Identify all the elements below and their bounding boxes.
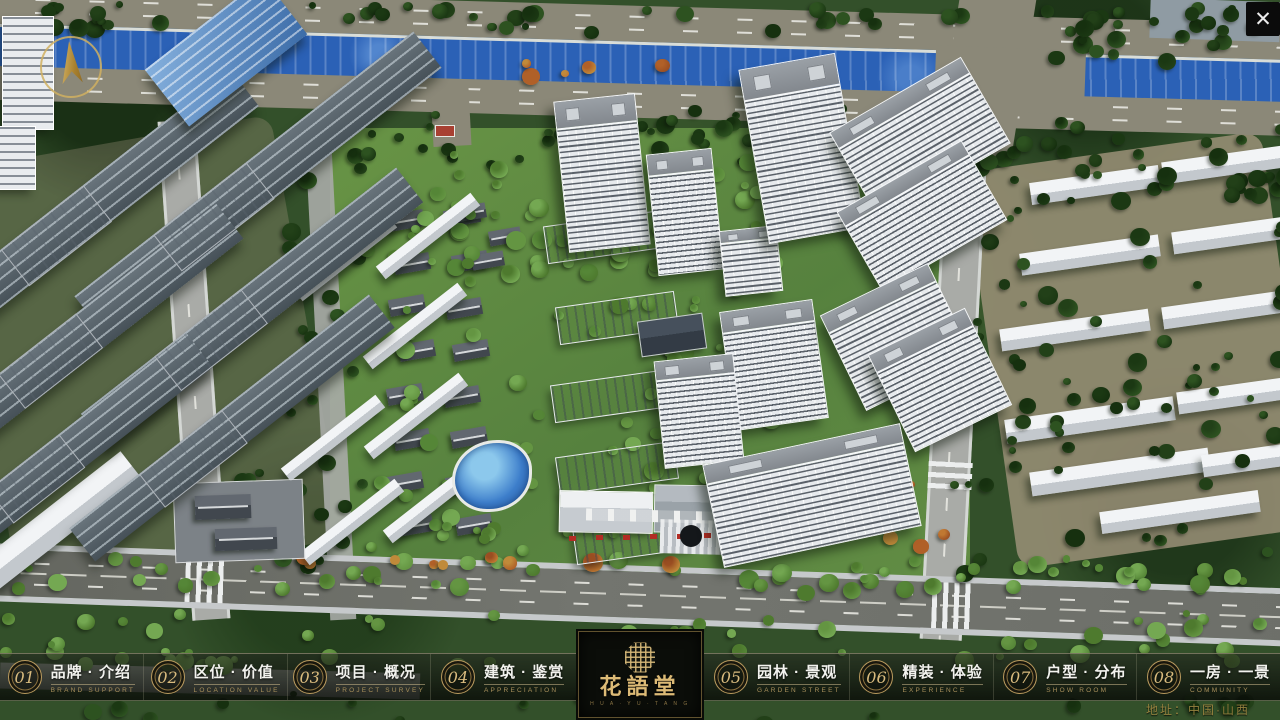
- tree: [319, 574, 335, 589]
- seal-emblem-icon: [625, 643, 655, 673]
- tree: [1187, 374, 1202, 388]
- tree: [314, 508, 329, 522]
- tree: [454, 170, 465, 180]
- nav-item-label-zh: 区位 · 价值: [194, 661, 274, 682]
- tree: [950, 481, 959, 490]
- tree: [1130, 228, 1149, 246]
- tree: [309, 2, 317, 9]
- nav-item-number-badge: 06: [859, 660, 893, 694]
- tree: [487, 23, 496, 32]
- tree: [1217, 25, 1228, 35]
- tree: [254, 565, 262, 572]
- tree: [1275, 124, 1280, 136]
- entry-gate: [436, 126, 454, 136]
- tree: [763, 615, 774, 625]
- tree: [1065, 529, 1084, 547]
- tree: [12, 582, 25, 594]
- tree: [956, 573, 966, 582]
- nav-item-number-badge: 01: [8, 660, 42, 694]
- tree: [1095, 564, 1104, 572]
- nav-item-text: 一房 · 一景COMMUNITY: [1190, 661, 1270, 694]
- tree: [772, 564, 792, 582]
- tree: [1084, 627, 1103, 644]
- tree: [155, 563, 168, 575]
- nav-item-05[interactable]: 05园林 · 景观GARDEN STREET: [706, 654, 850, 700]
- tree: [1175, 30, 1189, 43]
- nav-item-number-badge: 08: [1147, 660, 1181, 694]
- tree: [1201, 16, 1216, 30]
- tree: [506, 231, 526, 249]
- nav-item-label-zh: 品牌 · 介绍: [51, 661, 131, 682]
- tree: [561, 70, 568, 77]
- nav-item-label-en: GARDEN STREET: [757, 687, 841, 694]
- tree: [146, 623, 163, 638]
- tree: [466, 328, 481, 342]
- tree: [1235, 454, 1250, 468]
- nav-item-label-zh: 精装 · 体验: [902, 661, 982, 682]
- tree: [1142, 533, 1152, 542]
- nav-item-label-en: COMMUNITY: [1190, 687, 1250, 694]
- nav-item-label-zh: 园林 · 景观: [757, 661, 837, 682]
- tree: [647, 128, 655, 135]
- tree: [450, 578, 470, 596]
- residential-slab: [999, 309, 1151, 352]
- nav-item-text: 品牌 · 介绍BRAND SUPPORT: [51, 661, 135, 694]
- tree: [431, 111, 440, 119]
- residential-slab: [1161, 287, 1280, 330]
- tree: [843, 582, 861, 599]
- tree: [851, 562, 863, 573]
- flower-bed: [623, 535, 630, 540]
- tree: [469, 13, 478, 21]
- tree: [203, 571, 219, 586]
- tree: [1193, 364, 1200, 370]
- tree: [1124, 567, 1135, 577]
- project-logo-panel[interactable]: 花語堂 H U A · Y U · T A N G: [578, 631, 702, 718]
- tree: [430, 187, 446, 201]
- tree: [819, 574, 839, 592]
- tree: [302, 630, 314, 641]
- tree: [765, 24, 781, 38]
- courtyard-roof: [215, 527, 278, 551]
- tree: [1262, 547, 1274, 558]
- tree: [1133, 149, 1145, 160]
- tree: [818, 621, 836, 638]
- nav-item-number-badge: 04: [441, 660, 475, 694]
- tree: [741, 182, 749, 190]
- tree: [896, 581, 915, 598]
- flower-bed: [650, 534, 657, 539]
- tree: [1093, 171, 1102, 179]
- tree: [108, 552, 123, 566]
- tree: [1201, 137, 1213, 148]
- tree: [322, 290, 339, 306]
- tree: [338, 500, 351, 512]
- tree: [2, 613, 15, 625]
- tree: [691, 133, 704, 145]
- nav-item-06[interactable]: 06精装 · 体验EXPERIENCE: [850, 654, 994, 700]
- tree: [1183, 610, 1191, 617]
- nav-item-number-badge: 02: [151, 660, 185, 694]
- nav-item-label-zh: 户型 · 分布: [1046, 661, 1126, 682]
- tree: [395, 716, 405, 720]
- tree: [1015, 415, 1031, 429]
- tree: [1082, 560, 1090, 567]
- tree: [1058, 299, 1078, 317]
- tree: [1108, 49, 1119, 60]
- tree: [368, 130, 376, 138]
- tree: [519, 700, 529, 709]
- tree: [116, 1, 123, 8]
- tree: [715, 120, 733, 137]
- nav-item-07[interactable]: 07户型 · 分布SHOW ROOM: [994, 654, 1138, 700]
- tree: [1089, 154, 1102, 166]
- tree: [1067, 197, 1074, 204]
- nav-item-number-badge: 07: [1003, 660, 1037, 694]
- tree: [1157, 335, 1172, 349]
- nav-item-02[interactable]: 02区位 · 价值LOCATION VALUE: [144, 654, 288, 700]
- tree: [580, 264, 598, 281]
- tree: [143, 712, 158, 720]
- tree: [1062, 442, 1075, 454]
- tree: [130, 556, 142, 567]
- tree: [499, 21, 514, 35]
- tree: [1038, 286, 1058, 304]
- tree: [1092, 387, 1110, 404]
- tree: [275, 582, 290, 596]
- tree: [1006, 580, 1021, 594]
- tree: [860, 575, 869, 583]
- tree: [1014, 207, 1021, 214]
- tree: [48, 574, 66, 591]
- tree: [488, 610, 500, 621]
- tree: [1107, 31, 1126, 48]
- nav-item-number-badge: 03: [293, 660, 327, 694]
- tree: [460, 556, 475, 570]
- residential-slab: [300, 479, 404, 565]
- tree: [1067, 393, 1081, 406]
- tree: [394, 133, 404, 142]
- nav-item-divider: [1046, 684, 1126, 685]
- nav-item-text: 园林 · 景观GARDEN STREET: [757, 661, 841, 694]
- tree: [509, 375, 526, 391]
- tree: [1224, 188, 1240, 202]
- tree: [1149, 17, 1159, 26]
- tree: [965, 481, 972, 488]
- nav-item-label-en: SHOW ROOM: [1046, 687, 1108, 694]
- tree: [1048, 567, 1059, 577]
- tree: [111, 701, 128, 717]
- nav-item-label-zh: 项目 · 概况: [336, 661, 416, 682]
- tree: [403, 2, 413, 11]
- tree: [1112, 133, 1124, 144]
- tree: [526, 564, 539, 576]
- tree: [437, 530, 449, 541]
- nav-item-divider: [757, 684, 841, 685]
- rooftop-deck: [155, 291, 266, 390]
- tree: [432, 4, 447, 18]
- nav-item-label-zh: 一房 · 一景: [1190, 661, 1270, 682]
- tree: [727, 629, 737, 638]
- tree: [642, 6, 652, 15]
- tree: [1048, 51, 1064, 66]
- nav-item-divider: [1190, 684, 1270, 685]
- tree: [522, 59, 532, 68]
- tree: [1113, 7, 1124, 17]
- tree: [544, 129, 552, 137]
- tree: [501, 265, 520, 283]
- tree: [1209, 148, 1228, 166]
- nav-item-divider: [336, 684, 425, 685]
- tree: [426, 123, 434, 131]
- tree: [307, 395, 318, 405]
- nav-item-label-zh: 建筑 · 鉴赏: [484, 661, 564, 682]
- tree: [1054, 466, 1063, 474]
- tree: [836, 12, 850, 25]
- tree: [1134, 617, 1143, 625]
- tree: [716, 344, 724, 351]
- tree: [1128, 353, 1148, 371]
- nav-item-label-en: LOCATION VALUE: [194, 687, 280, 694]
- tree: [473, 527, 481, 534]
- tree: [1007, 436, 1017, 445]
- tree: [584, 26, 599, 39]
- tree: [533, 410, 544, 420]
- tree: [522, 23, 530, 30]
- tree: [621, 417, 633, 428]
- tree: [371, 618, 385, 631]
- tree: [1075, 20, 1094, 37]
- tree: [1041, 5, 1055, 18]
- tree: [479, 534, 490, 544]
- tree: [438, 560, 448, 569]
- tree: [1020, 301, 1027, 308]
- tree: [428, 258, 436, 265]
- tree: [542, 135, 555, 147]
- tree: [442, 522, 452, 531]
- tree: [152, 15, 169, 30]
- tree: [1199, 478, 1212, 490]
- nav-item-divider: [484, 684, 564, 685]
- tree: [968, 563, 980, 574]
- nav-item-text: 区位 · 价值LOCATION VALUE: [194, 661, 280, 694]
- tree: [133, 574, 146, 586]
- nav-item-label-en: EXPERIENCE: [902, 687, 966, 694]
- tree: [491, 211, 500, 219]
- tree: [1253, 618, 1267, 631]
- nav-item-divider: [51, 684, 135, 685]
- tree: [77, 614, 94, 630]
- tree: [465, 276, 476, 287]
- tree: [1111, 192, 1130, 210]
- nav-item-text: 精装 · 体验EXPERIENCE: [902, 661, 982, 694]
- tree: [347, 366, 359, 377]
- project-address: 地址：中国·山西: [1146, 701, 1250, 718]
- tree: [1149, 446, 1160, 456]
- tree: [1201, 420, 1221, 438]
- tree: [1190, 575, 1210, 593]
- tree: [462, 258, 474, 269]
- nav-item-08[interactable]: 08一房 · 一景COMMUNITY: [1137, 654, 1280, 700]
- tree: [1185, 7, 1199, 20]
- tree: [374, 577, 382, 585]
- tree: [174, 609, 186, 620]
- tree: [1063, 555, 1071, 562]
- tree: [1154, 535, 1166, 546]
- rooftop-deck: [0, 315, 102, 408]
- tree: [666, 115, 678, 126]
- project-name-latin: H U A · Y U · T A N G: [590, 701, 690, 707]
- tree: [90, 6, 106, 21]
- nav-group-left: 01品牌 · 介绍BRAND SUPPORT02区位 · 价值LOCATION …: [0, 654, 574, 700]
- tree: [420, 434, 438, 451]
- tree: [1244, 188, 1257, 200]
- tree: [1007, 215, 1014, 222]
- tree: [515, 155, 523, 163]
- midrise-slab: [551, 370, 673, 422]
- tree: [938, 529, 950, 540]
- tree: [1270, 351, 1280, 368]
- tree: [693, 618, 706, 630]
- tree: [517, 545, 530, 557]
- nav-item-01[interactable]: 01品牌 · 介绍BRAND SUPPORT: [0, 654, 144, 700]
- apartment-tower: [655, 354, 744, 468]
- tree: [1223, 7, 1239, 21]
- tree: [809, 2, 826, 18]
- tree: [1123, 379, 1142, 396]
- tree: [979, 478, 994, 492]
- nav-group-right: 05园林 · 景观GARDEN STREET06精装 · 体验EXPERIENC…: [706, 654, 1280, 700]
- tree: [1211, 363, 1220, 371]
- tree: [418, 144, 428, 153]
- compass-icon: [40, 36, 102, 98]
- tree: [282, 223, 301, 241]
- close-button[interactable]: ✕: [1246, 2, 1280, 36]
- tree: [490, 161, 508, 178]
- flower-bed: [704, 533, 711, 538]
- nav-item-label-en: PROJECT SURVEY: [336, 687, 425, 694]
- tree: [1001, 636, 1016, 650]
- tree: [118, 617, 129, 627]
- tree: [1057, 145, 1072, 159]
- tree: [1028, 556, 1047, 573]
- apartment-tower: [554, 94, 649, 252]
- tree: [1236, 135, 1247, 145]
- nav-item-04[interactable]: 04建筑 · 鉴赏APPRECIATION: [431, 654, 574, 700]
- tree: [582, 61, 596, 74]
- tree: [48, 641, 56, 648]
- tree: [361, 147, 376, 161]
- tree: [690, 304, 698, 311]
- tree: [1039, 343, 1054, 357]
- tree: [1224, 569, 1241, 585]
- tree: [485, 552, 497, 563]
- tree: [1013, 359, 1026, 371]
- tree: [973, 318, 982, 326]
- tree: [1063, 378, 1071, 385]
- tree: [816, 19, 827, 29]
- tree: [869, 712, 879, 720]
- tree: [1177, 523, 1188, 533]
- nav-item-text: 建筑 · 鉴赏APPRECIATION: [484, 661, 564, 694]
- tree: [492, 180, 502, 189]
- tree: [503, 556, 518, 569]
- tree: [924, 578, 943, 595]
- tree: [357, 479, 368, 489]
- tree: [1207, 40, 1219, 51]
- tree: [868, 18, 881, 30]
- tree: [1110, 402, 1122, 413]
- tree: [1158, 53, 1176, 70]
- tree: [913, 539, 929, 553]
- tree: [1224, 352, 1233, 360]
- tree: [1009, 447, 1016, 454]
- tree: [354, 163, 367, 175]
- tree: [84, 704, 102, 720]
- tree: [1248, 170, 1266, 187]
- tree: [1013, 561, 1028, 575]
- tree: [1259, 411, 1268, 419]
- tree: [999, 279, 1010, 289]
- nav-item-text: 户型 · 分布SHOW ROOM: [1046, 661, 1126, 694]
- courtyard-villa: [452, 339, 490, 362]
- tree: [1016, 136, 1034, 152]
- tree: [909, 556, 921, 567]
- tree: [346, 566, 361, 580]
- nav-item-03[interactable]: 03项目 · 概况PROJECT SURVEY: [288, 654, 432, 700]
- tree: [1138, 164, 1146, 171]
- tree: [1024, 639, 1036, 650]
- nav-item-label-en: BRAND SUPPORT: [51, 687, 135, 694]
- tree: [1019, 398, 1036, 414]
- tree: [676, 6, 693, 22]
- tree: [1089, 45, 1104, 59]
- project-name: 花語堂: [599, 676, 680, 698]
- nav-item-number-badge: 05: [714, 660, 748, 694]
- nav-item-label-en: APPRECIATION: [484, 687, 558, 694]
- tree: [531, 261, 549, 277]
- masterplan-3d-view[interactable]: ✕: [0, 0, 1280, 720]
- app-window: ✕ 01品牌 · 介绍BRAND SUPPORT02区位 · 价值LOCATIO…: [0, 0, 1280, 720]
- tree: [431, 580, 442, 590]
- tree: [1247, 395, 1254, 401]
- tree: [366, 542, 377, 552]
- nav-item-divider: [902, 684, 982, 685]
- tree: [343, 13, 355, 24]
- tree: [1055, 117, 1067, 128]
- tree: [688, 105, 701, 117]
- tree: [1017, 258, 1030, 270]
- apartment-tower: [647, 149, 723, 275]
- tree: [655, 59, 670, 72]
- entry-plaza-circle: [680, 525, 702, 547]
- nav-item-divider: [194, 684, 280, 685]
- tree: [1143, 255, 1158, 268]
- tree: [1010, 176, 1019, 184]
- tree: [69, 19, 88, 37]
- tower-block: [0, 127, 35, 189]
- tree: [1037, 193, 1050, 205]
- tree: [1161, 403, 1172, 413]
- compass-needle: [52, 40, 90, 89]
- tree: [1184, 619, 1203, 637]
- tree: [981, 234, 999, 250]
- tree: [755, 716, 774, 720]
- tree: [1041, 137, 1056, 151]
- flower-bed: [569, 536, 576, 541]
- tree: [1067, 699, 1082, 712]
- tree: [1266, 427, 1280, 443]
